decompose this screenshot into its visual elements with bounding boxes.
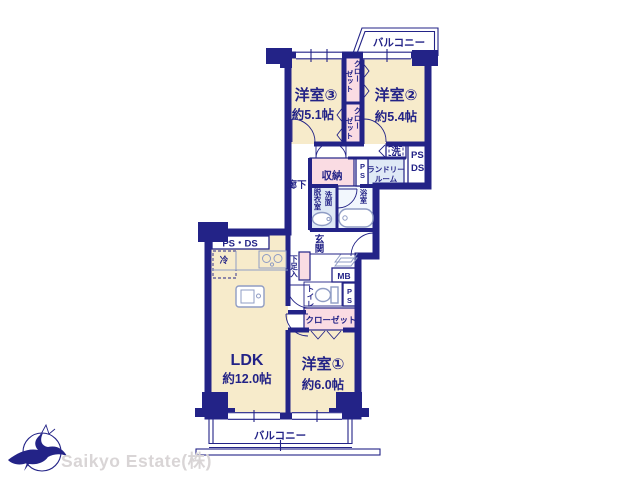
room-western1-name: 洋室① [302, 355, 345, 373]
toilet-tank-icon [331, 287, 338, 303]
room-ldk-size: 約12.0帖 [222, 371, 272, 386]
meter-box-label: MB [337, 271, 350, 281]
room-western1-size: 約6.0帖 [302, 377, 345, 392]
closet-lower-label-2: ゼット [345, 116, 354, 140]
room-western3-name: 洋室③ [295, 86, 338, 104]
sink-icon [313, 213, 332, 226]
balcony-bottom-label: バルコニー [254, 430, 306, 442]
washroom-label-left: 脱衣室 [313, 187, 322, 212]
room-western2-name: 洋室② [375, 86, 418, 104]
floorplan-drawing: バルコニー 洋室③ 約5.1帖 洋室② 約5.4帖 クロー ゼット クロー ゼッ… [0, 0, 640, 480]
toilet-bowl-icon [316, 289, 331, 302]
balcony-top-label: バルコニー [373, 37, 425, 49]
laundry-label-2: ルーム [375, 175, 398, 184]
room-western3-size: 約5.1帖 [292, 107, 335, 122]
room-western2-size: 約5.4帖 [375, 109, 418, 124]
ps-ds-label-1: PS [411, 150, 424, 161]
ps-ds-ldk-label: PS・DS [222, 239, 257, 250]
entrance-label: 玄関 [313, 233, 325, 254]
company-name: Saikyo Estate(株) [61, 451, 212, 471]
ps-hall-label: PS [358, 162, 367, 180]
closet-lower-label-1: クロー [353, 107, 362, 130]
washer-label: 洗 [391, 146, 401, 158]
bathtub-icon [339, 209, 373, 227]
corridor-label: 廊下 [287, 179, 307, 191]
storage-label: 収納 [322, 169, 343, 182]
floorplan-page: バルコニー 洋室③ 約5.1帖 洋室② 約5.4帖 クロー ゼット クロー ゼッ… [0, 0, 640, 480]
company-logo [8, 425, 67, 471]
closet-upper-label-2: ゼット [345, 69, 354, 93]
toilet-label: トイレ [306, 285, 315, 308]
fridge-label: 冷 [220, 255, 229, 265]
laundry-label-1: ランドリー [367, 165, 405, 174]
kitchen-sink-icon [236, 286, 264, 307]
bird-logo-icon [8, 433, 67, 471]
bathroom-label: 浴室 [359, 188, 368, 206]
closet-upper-label-1: クロー [353, 60, 362, 83]
shoe-cabinet-label: 下足入 [289, 255, 298, 278]
washroom-label-right: 洗面 [324, 190, 333, 208]
room-ldk-name: LDK [231, 352, 264, 369]
ps-ds-label-2: DS [411, 163, 424, 174]
shoe-cabinet-box [299, 252, 310, 280]
closet-bedroom1-label: クローゼット [305, 315, 356, 325]
ps-toilet-label: PS [345, 287, 354, 305]
